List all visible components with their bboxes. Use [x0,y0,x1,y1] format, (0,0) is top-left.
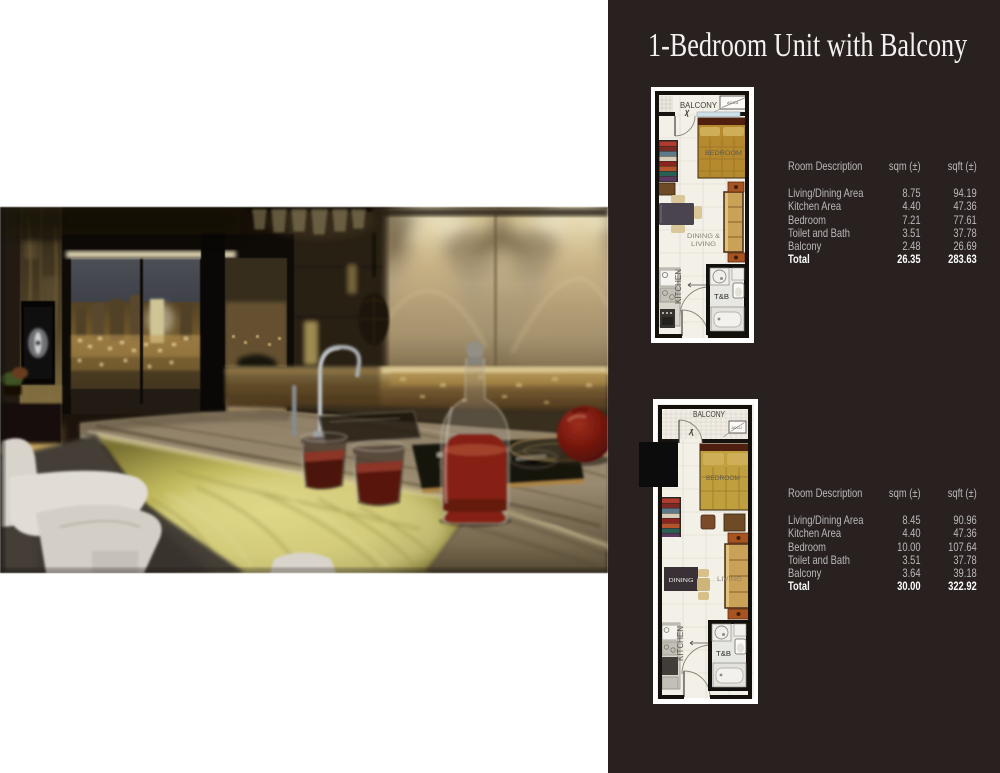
svg-text:BEDROOM: BEDROOM [706,476,740,482]
svg-text:T&B: T&B [714,292,729,301]
svg-text:KITCHEN: KITCHEN [674,269,683,304]
svg-text:ACCU: ACCU [727,100,738,105]
svg-text:ACCU: ACCU [732,426,743,430]
svg-text:KITCHEN: KITCHEN [676,626,685,661]
svg-text:BALCONY: BALCONY [680,100,717,110]
svg-text:DINING &: DINING & [687,233,721,240]
svg-text:LIVING: LIVING [691,241,716,248]
svg-text:BEDROOM: BEDROOM [705,151,742,157]
svg-text:DINING: DINING [669,578,694,584]
svg-text:T&B: T&B [716,649,731,658]
svg-text:LIVING: LIVING [717,576,742,583]
svg-text:BALCONY: BALCONY [693,410,726,419]
